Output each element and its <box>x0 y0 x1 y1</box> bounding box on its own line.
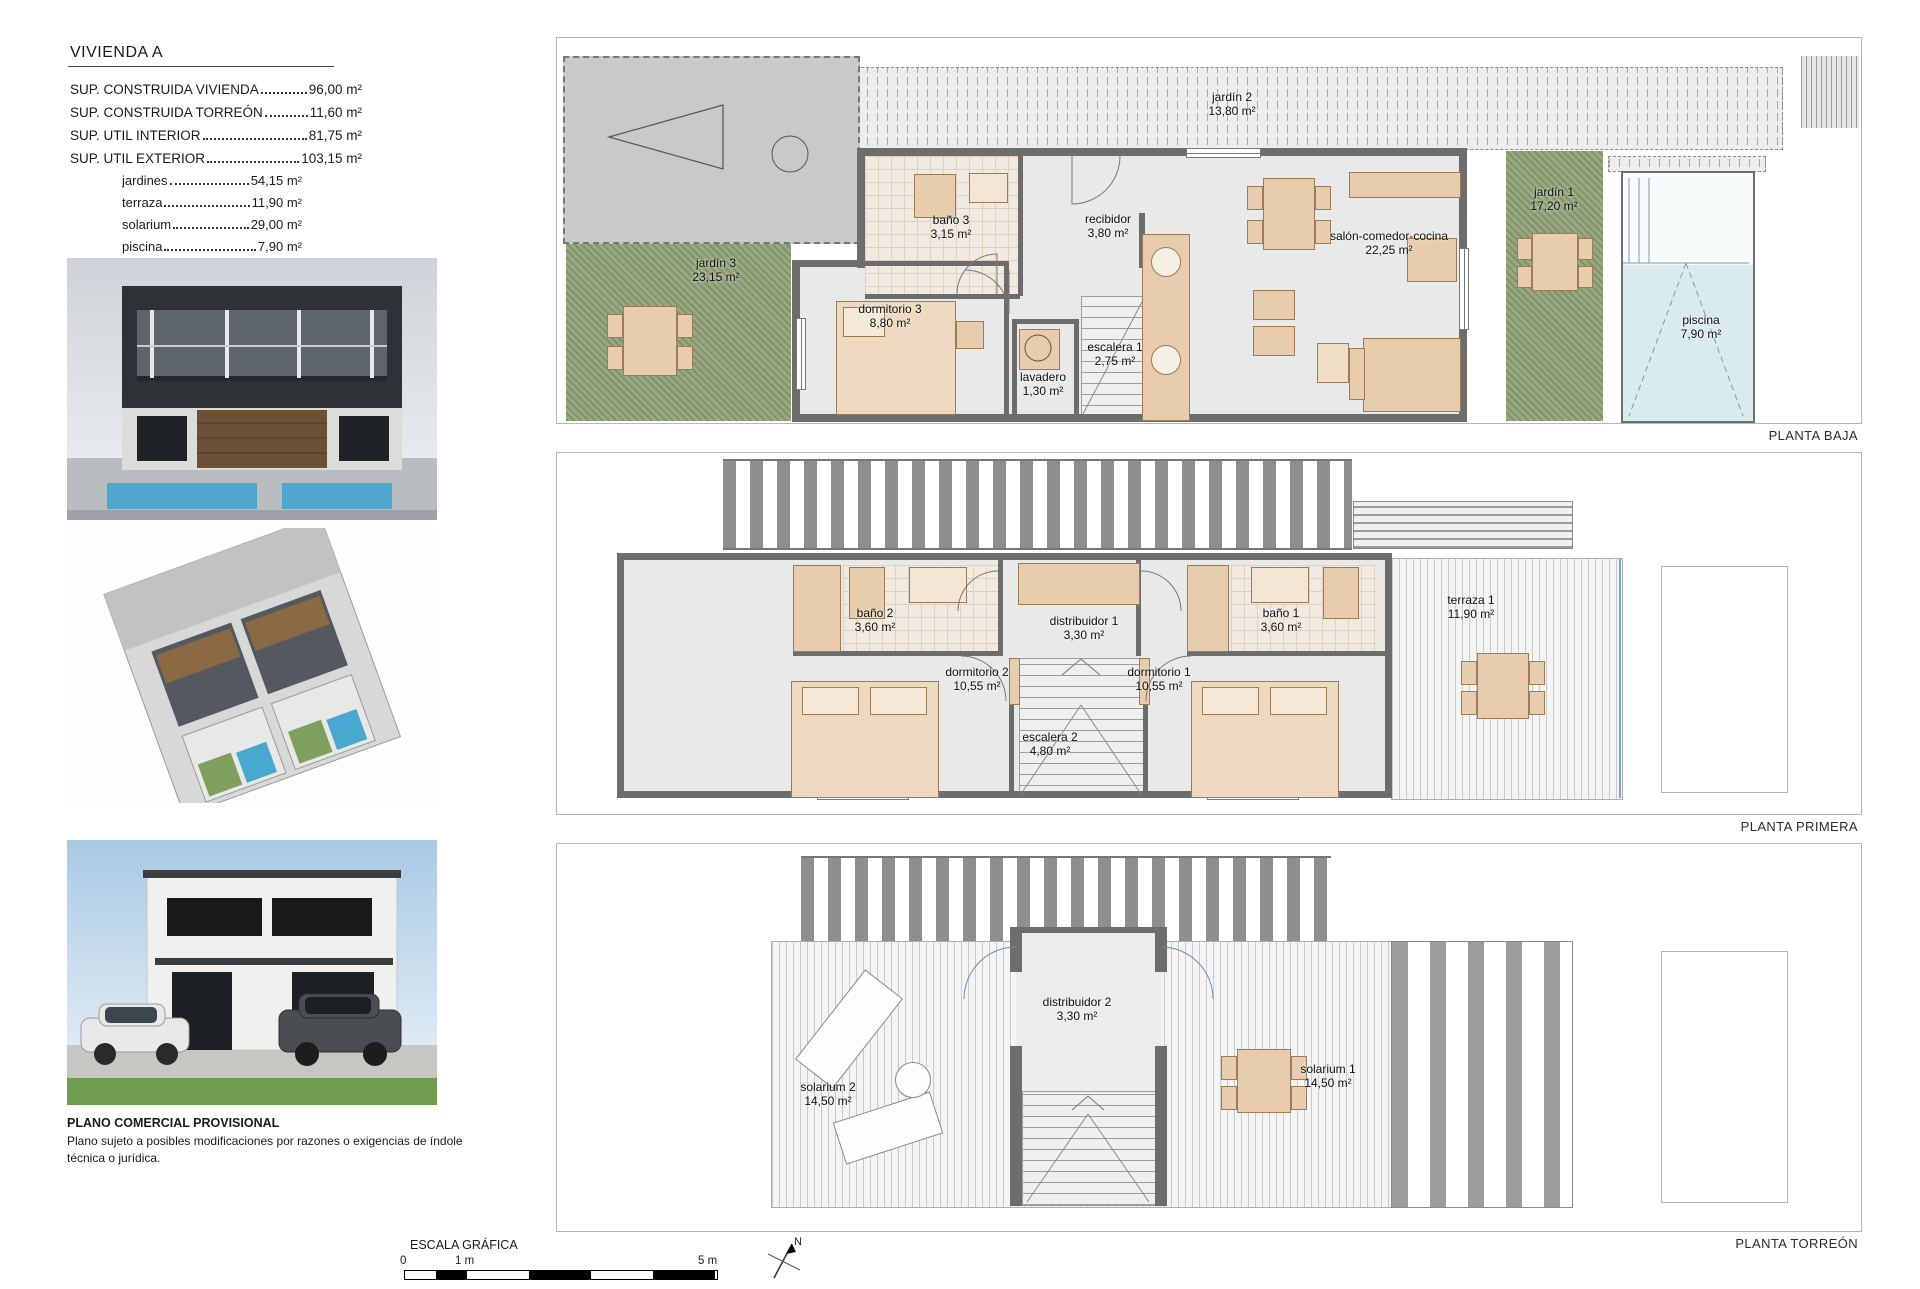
bed-double <box>1191 681 1339 798</box>
room-area: 3,60 m² <box>1261 621 1302 635</box>
room-name: recibidor <box>1085 213 1131 227</box>
page-title: VIVIENDA A <box>70 44 163 62</box>
staircase-torreon <box>1022 1091 1157 1206</box>
disclaimer-title: PLANO COMERCIAL PROVISIONAL <box>67 1116 467 1130</box>
armchair <box>1253 326 1295 356</box>
chair <box>607 314 623 338</box>
wall <box>1155 1046 1167 1096</box>
room-label-jardin-1: jardín 117,20 m² <box>1530 186 1577 214</box>
wall <box>1074 319 1079 417</box>
solarium-table <box>1237 1049 1291 1113</box>
row-value: 11,60 m² <box>310 105 362 120</box>
garden-table <box>1532 233 1578 291</box>
row-value: 11,90 m² <box>252 195 302 210</box>
wall <box>998 560 1003 656</box>
garden-table <box>623 306 677 376</box>
scale-segment <box>405 1271 436 1279</box>
scale-segment <box>653 1271 715 1279</box>
north-arrow-icon: N <box>762 1236 808 1284</box>
room-name: escalera 2 <box>1022 731 1077 745</box>
table-row: jardines54,15 m² <box>122 166 302 188</box>
pool-area <box>1621 171 1755 423</box>
scale-segment <box>529 1271 591 1279</box>
scale-segment <box>591 1271 653 1279</box>
leader-dots <box>164 205 249 207</box>
wall <box>1018 151 1023 296</box>
room-label-jardin-2: jardín 213,80 m² <box>1208 91 1255 119</box>
chair <box>1247 186 1263 210</box>
room-name: escalera 1 <box>1087 341 1142 355</box>
room-label-dormitorio-2: dormitorio 210,55 m² <box>945 666 1008 694</box>
corner-hatch-area <box>1801 56 1859 128</box>
room-name: piscina <box>1681 314 1722 328</box>
chair <box>1529 661 1545 685</box>
plan-label-planta-baja: PLANTA BAJA <box>1456 428 1858 443</box>
room-name: jardín 3 <box>692 257 739 271</box>
room-label-distribuidor-1: distribuidor 13,30 m² <box>1050 615 1119 643</box>
scale-title: ESCALA GRÁFICA <box>410 1238 518 1252</box>
room-label-terraza-1: terraza 111,90 m² <box>1447 594 1494 622</box>
room-name: terraza 1 <box>1447 594 1494 608</box>
row-value: 81,75 m² <box>309 128 362 143</box>
wall <box>796 261 1009 266</box>
kitchen-counter <box>1349 172 1461 198</box>
room-name: lavadero <box>1020 371 1066 385</box>
room-area: 2,75 m² <box>1087 355 1142 369</box>
chair <box>677 314 693 338</box>
pillow <box>1270 687 1327 715</box>
sink <box>1251 567 1309 603</box>
room-area: 22,25 m² <box>1330 244 1448 258</box>
room-area: 14,50 m² <box>800 1095 855 1109</box>
wall <box>1010 1046 1022 1096</box>
wall <box>1143 701 1148 796</box>
row-value: 29,00 m² <box>251 217 302 232</box>
wall <box>1010 927 1167 933</box>
graphic-scale-bar <box>404 1270 718 1280</box>
plan-label-planta-primera: PLANTA PRIMERA <box>1456 819 1858 834</box>
cooktop <box>1151 345 1181 375</box>
chair <box>1461 691 1477 715</box>
row-value: 54,15 m² <box>251 173 302 188</box>
wardrobe <box>793 565 841 652</box>
room-name: jardín 2 <box>1208 91 1255 105</box>
row-label: SUP. CONSTRUIDA VIVIENDA <box>70 82 259 97</box>
room-name: baño 2 <box>855 607 896 621</box>
room-label-dormitorio-1: dormitorio 110,55 m² <box>1127 666 1190 694</box>
render-front-view <box>67 258 437 520</box>
surface-table: SUP. CONSTRUIDA VIVIENDA96,00 m² SUP. CO… <box>70 74 362 166</box>
room-area: 4,80 m² <box>1022 745 1077 759</box>
room-label-distribuidor-2: distribuidor 23,30 m² <box>1043 996 1112 1024</box>
room-label-escalera-1: escalera 12,75 m² <box>1087 341 1142 369</box>
round-table <box>895 1062 931 1098</box>
disclaimer: PLANO COMERCIAL PROVISIONAL Plano sujeto… <box>67 1116 467 1167</box>
north-label: N <box>794 1236 802 1248</box>
room-area: 7,90 m² <box>1681 328 1722 342</box>
window <box>796 318 806 390</box>
room-label-escalera-2: escalera 24,80 m² <box>1022 731 1077 759</box>
room-label-solarium-1: solarium 114,50 m² <box>1300 1063 1355 1091</box>
wall <box>1155 927 1167 972</box>
driveway-area <box>563 56 860 244</box>
wall <box>1155 1091 1167 1206</box>
room-area: 10,55 m² <box>1127 680 1190 694</box>
scale-segment <box>467 1271 529 1279</box>
room-area: 14,50 m² <box>1300 1077 1355 1091</box>
row-label: solarium <box>122 217 171 232</box>
room-area: 17,20 m² <box>1530 200 1577 214</box>
table-row: piscina7,90 m² <box>122 232 302 254</box>
wall <box>1010 927 1022 972</box>
wall <box>1385 553 1392 798</box>
aerial-view-illustration <box>67 528 437 803</box>
wall <box>1004 263 1009 416</box>
table-row: SUP. UTIL INTERIOR81,75 m² <box>70 120 362 143</box>
row-value: 7,90 m² <box>258 239 302 254</box>
room-name: distribuidor 2 <box>1043 996 1112 1010</box>
pergola-bars <box>1391 941 1573 1208</box>
room-name: dormitorio 3 <box>858 303 921 317</box>
chair <box>1315 186 1331 210</box>
rear-view-illustration <box>67 840 437 1105</box>
wall <box>617 553 1392 560</box>
leader-dots <box>173 227 249 229</box>
row-label: jardines <box>122 173 168 188</box>
room-label-lavadero: lavadero1,30 m² <box>1020 371 1066 399</box>
sofa <box>1363 338 1461 412</box>
chair <box>1517 238 1532 260</box>
room-name: salón-comedor-cocina <box>1330 230 1448 244</box>
room-area: 3,30 m² <box>1050 629 1119 643</box>
room-area: 3,80 m² <box>1085 227 1131 241</box>
washing-machine <box>1019 329 1060 370</box>
scale-tick-one: 1 m <box>455 1255 474 1267</box>
row-label: SUP. CONSTRUIDA TORREÓN <box>70 105 263 120</box>
jardin-2-hatch-area <box>856 67 1783 150</box>
room-area: 23,15 m² <box>692 271 739 285</box>
wall <box>792 414 1467 422</box>
title-underline <box>68 66 334 67</box>
room-label-piscina: piscina7,90 m² <box>1681 314 1722 342</box>
coffee-table <box>1317 343 1349 383</box>
room-area: 3,60 m² <box>855 621 896 635</box>
wardrobe <box>1187 565 1229 652</box>
chair <box>1578 238 1593 260</box>
sofa-chaise <box>1349 348 1365 400</box>
room-label-jardin-3: jardín 323,15 m² <box>692 257 739 285</box>
room-name: distribuidor 1 <box>1050 615 1119 629</box>
terrace-table <box>1477 653 1529 719</box>
window <box>1186 148 1261 158</box>
chair <box>1247 220 1263 244</box>
leader-dots <box>265 115 308 117</box>
shower <box>1323 567 1359 619</box>
row-value: 103,15 m² <box>301 151 362 166</box>
dining-table <box>1263 178 1315 250</box>
neighbor-plot-outline <box>1661 566 1788 793</box>
plan-label-planta-torreon: PLANTA TORREÓN <box>1456 1236 1858 1251</box>
pillow <box>870 687 927 715</box>
row-label: SUP. UTIL EXTERIOR <box>70 151 205 166</box>
wall <box>857 148 865 268</box>
wall <box>857 148 1467 156</box>
wardrobe <box>1018 563 1140 605</box>
room-name: dormitorio 1 <box>1127 666 1190 680</box>
row-label: terraza <box>122 195 162 210</box>
room-name: dormitorio 2 <box>945 666 1008 680</box>
staircase-2 <box>1019 658 1145 798</box>
door-panel <box>1009 658 1020 705</box>
window <box>1459 248 1469 330</box>
pergola-slats <box>723 459 1352 550</box>
chair <box>1461 661 1477 685</box>
bathtub <box>914 174 956 218</box>
disclaimer-body: Plano sujeto a posibles modificaciones p… <box>67 1133 467 1167</box>
plan-planta-baja: jardín 213,80 m² jardín 323,15 m² baño 3… <box>556 37 1862 424</box>
scale-segment <box>436 1271 467 1279</box>
room-label-bano-2: baño 23,60 m² <box>855 607 896 635</box>
room-label-bano-3: baño 33,15 m² <box>931 214 972 242</box>
leader-dots <box>164 249 255 251</box>
render-aerial-view <box>67 528 437 803</box>
table-row: SUP. UTIL EXTERIOR103,15 m² <box>70 143 362 166</box>
row-value: 96,00 m² <box>309 82 362 97</box>
room-area: 8,80 m² <box>858 317 921 331</box>
leader-dots <box>203 138 307 140</box>
chair <box>1221 1086 1237 1110</box>
table-row: SUP. CONSTRUIDA VIVIENDA96,00 m² <box>70 74 362 97</box>
chair <box>1578 266 1593 288</box>
room-area: 10,55 m² <box>945 680 1008 694</box>
front-view-illustration <box>67 258 437 520</box>
scale-tick-five: 5 m <box>698 1255 717 1267</box>
wall <box>617 553 624 798</box>
plan-planta-torreon: solarium 214,50 m² distribuidor 23,30 m²… <box>556 843 1862 1232</box>
leader-dots <box>261 92 307 94</box>
surface-subtable: jardines54,15 m² terraza11,90 m² solariu… <box>122 166 302 254</box>
room-name: baño 1 <box>1261 607 1302 621</box>
pillow <box>1202 687 1259 715</box>
room-name: solarium 1 <box>1300 1063 1355 1077</box>
render-rear-view <box>67 840 437 1105</box>
terrace-edge-line <box>1619 558 1621 798</box>
sink <box>909 567 967 603</box>
table-row: terraza11,90 m² <box>122 188 302 210</box>
room-area: 1,30 m² <box>1020 385 1066 399</box>
room-area: 13,80 m² <box>1208 105 1255 119</box>
table-row: SUP. CONSTRUIDA TORREÓN11,60 m² <box>70 97 362 120</box>
chair <box>1315 220 1331 244</box>
kitchen-counter <box>1142 234 1190 421</box>
wall <box>1009 701 1014 796</box>
room-name: solarium 2 <box>800 1081 855 1095</box>
room-name: jardín 1 <box>1530 186 1577 200</box>
room-area: 11,90 m² <box>1447 608 1494 622</box>
room-label-recibidor: recibidor3,80 m² <box>1085 213 1131 241</box>
wall <box>1012 319 1079 324</box>
bed-double <box>791 681 939 798</box>
scale-tick-zero: 0 <box>400 1255 406 1267</box>
pergola-horizontal-slats <box>1353 501 1573 549</box>
wall <box>1010 1091 1022 1206</box>
sink-basin <box>1151 247 1181 277</box>
nightstand <box>956 321 984 349</box>
room-area: 3,30 m² <box>1043 1010 1112 1024</box>
plan-planta-primera: baño 23,60 m² distribuidor 13,30 m² baño… <box>556 452 1862 815</box>
room-area: 3,15 m² <box>931 228 972 242</box>
wall <box>865 294 1020 299</box>
leader-dots <box>207 161 299 163</box>
chair <box>1517 266 1532 288</box>
wall <box>1012 319 1017 417</box>
pool-deck-hatch <box>1608 156 1766 172</box>
chair <box>1529 691 1545 715</box>
neighbor-plot-outline <box>1661 951 1788 1203</box>
room-label-dormitorio-3: dormitorio 38,80 m² <box>858 303 921 331</box>
room-label-bano-1: baño 13,60 m² <box>1261 607 1302 635</box>
armchair <box>1253 290 1295 320</box>
chair <box>607 346 623 370</box>
pillow <box>802 687 859 715</box>
chair <box>677 346 693 370</box>
room-label-salon: salón-comedor-cocina22,25 m² <box>1330 230 1448 258</box>
room-name: baño 3 <box>931 214 972 228</box>
row-label: SUP. UTIL INTERIOR <box>70 128 201 143</box>
leader-dots <box>170 183 249 185</box>
table-row: solarium29,00 m² <box>122 210 302 232</box>
chair <box>1221 1056 1237 1080</box>
sink <box>969 173 1008 203</box>
room-label-solarium-2: solarium 214,50 m² <box>800 1081 855 1109</box>
row-label: piscina <box>122 239 162 254</box>
